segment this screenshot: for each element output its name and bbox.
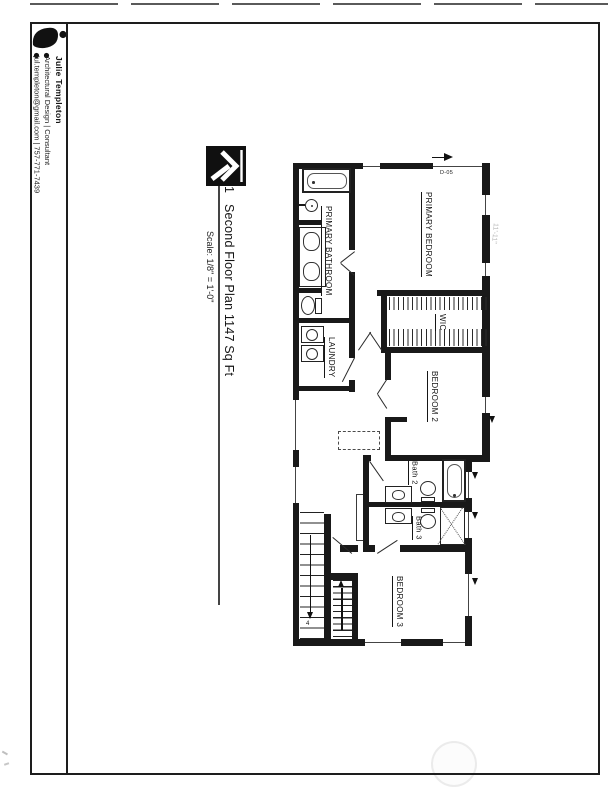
closet-shelf-hatch xyxy=(389,297,488,310)
window xyxy=(443,642,465,644)
washer-drum xyxy=(306,329,318,341)
room-label-bedroom-3: BEDROOM 3 xyxy=(392,576,403,627)
vanity-symbol xyxy=(385,508,412,524)
door-swing xyxy=(377,540,398,554)
title-underline xyxy=(218,186,220,605)
closet-shelf-hatch xyxy=(389,329,488,346)
stair-arrowhead-up xyxy=(338,580,344,587)
wall xyxy=(293,220,321,225)
sink-drain xyxy=(311,205,314,208)
window xyxy=(295,467,297,503)
shower-x xyxy=(438,507,463,544)
stair-arrow-down xyxy=(310,535,312,613)
scan-smudge xyxy=(2,751,8,755)
toilet-bowl xyxy=(420,481,436,496)
door-swing xyxy=(342,358,355,383)
stair-count-label: 4 xyxy=(306,621,309,627)
window xyxy=(433,166,482,168)
sidebar-rule xyxy=(66,22,68,775)
stair-arrowhead-down xyxy=(307,612,313,619)
window xyxy=(485,397,487,413)
sink-stem xyxy=(299,204,305,206)
wall xyxy=(381,296,387,353)
wall xyxy=(465,462,472,472)
toilet-tank xyxy=(421,497,435,502)
wall xyxy=(349,272,355,358)
drawing-scale: Scale: 1/8" = 1'-0" xyxy=(205,231,215,302)
bathtub-symbol xyxy=(442,459,466,502)
designer-contact: jul.templeton@gmail.com | 757-771-7439 xyxy=(31,56,42,766)
shower-x xyxy=(440,508,465,545)
north-arrow-icon xyxy=(206,146,246,186)
wall xyxy=(482,215,490,263)
wall xyxy=(381,347,490,353)
toilet-tank xyxy=(315,298,322,314)
door-swing xyxy=(369,461,384,482)
vanity-bowl xyxy=(392,490,405,500)
window xyxy=(485,263,487,276)
stair-arrow-up xyxy=(341,588,343,630)
scan-smudge xyxy=(4,762,9,765)
vanity-bowl xyxy=(303,262,320,281)
room-label-bedroom-2: BEDROOM 2 xyxy=(427,371,438,422)
tub-drain xyxy=(312,181,315,184)
wall xyxy=(324,514,331,646)
wall xyxy=(400,545,465,552)
wall xyxy=(465,616,472,646)
room-label-bath-2: Bath 2 xyxy=(408,461,418,485)
window-marker xyxy=(472,578,478,585)
wall xyxy=(385,353,391,380)
window-marker xyxy=(489,416,495,423)
vanity-symbol xyxy=(385,486,412,503)
window-marker xyxy=(472,472,478,479)
toilet-bowl xyxy=(301,296,315,315)
drawing-title-text: Second Floor Plan 1147 Sq Ft xyxy=(222,204,236,376)
floor-plan: 4 xyxy=(293,150,505,655)
dryer-drum xyxy=(306,348,318,360)
wall xyxy=(377,290,490,296)
window xyxy=(468,512,470,538)
wall xyxy=(380,163,433,169)
drawing-number: 1 xyxy=(222,186,236,193)
window xyxy=(365,642,401,644)
window xyxy=(485,195,487,215)
entry-arrow-icon xyxy=(444,153,453,161)
window-marker xyxy=(472,512,478,519)
window xyxy=(295,400,297,450)
round-sink-symbol xyxy=(305,199,318,212)
vanity-bowl xyxy=(392,512,405,522)
room-label-wic: WIC xyxy=(435,314,446,331)
wall xyxy=(331,573,358,580)
door-swing xyxy=(377,394,387,408)
door-tag: D-05 xyxy=(440,170,453,176)
wall xyxy=(293,450,299,467)
scan-artifact-line xyxy=(30,3,608,5)
dryer-symbol xyxy=(301,345,324,362)
wall xyxy=(465,498,472,512)
room-label-primary-bathroom: PRIMARY BATHROOM xyxy=(321,206,332,296)
drawing-title: 1Second Floor Plan 1147 Sq Ft xyxy=(222,186,236,376)
wall xyxy=(482,163,490,195)
door-swing xyxy=(377,379,387,393)
wall xyxy=(365,545,375,552)
wall xyxy=(293,288,321,293)
vanity-bowl xyxy=(303,232,320,251)
designer-info-block: Julie Templeton Architectural Design | C… xyxy=(31,56,64,766)
shower-symbol xyxy=(440,507,465,545)
door-swing xyxy=(340,263,355,276)
designer-name: Julie Templeton xyxy=(52,56,64,766)
wall xyxy=(299,386,351,391)
wall xyxy=(293,503,299,646)
bathtub-symbol xyxy=(302,168,351,193)
door-swing xyxy=(358,332,371,350)
window xyxy=(468,472,470,498)
toilet-tank xyxy=(421,508,435,513)
window xyxy=(468,574,470,616)
designer-tagline: Architectural Design | Consultant xyxy=(42,56,53,766)
window xyxy=(363,166,380,168)
attic-access-dashed xyxy=(338,431,380,450)
room-label-primary-bedroom: PRIMARY BEDROOM xyxy=(421,192,432,277)
room-label-bath-3: Bath 3 xyxy=(412,516,422,540)
stair-run-down xyxy=(300,512,324,639)
wall xyxy=(385,417,407,422)
watermark-circle xyxy=(431,741,477,787)
tub-drain xyxy=(453,494,456,497)
scanned-floor-plan-page: Julie Templeton Architectural Design | C… xyxy=(0,0,612,792)
room-label-laundry: LAUNDRY xyxy=(324,337,335,378)
wall xyxy=(299,318,351,323)
door-swing xyxy=(340,251,355,263)
wall xyxy=(465,455,490,462)
wall xyxy=(465,538,472,574)
bathtub-basin xyxy=(447,464,462,498)
wall xyxy=(401,639,443,646)
stair-run-up xyxy=(333,580,352,639)
wall xyxy=(352,575,358,646)
washer-symbol xyxy=(301,326,324,343)
